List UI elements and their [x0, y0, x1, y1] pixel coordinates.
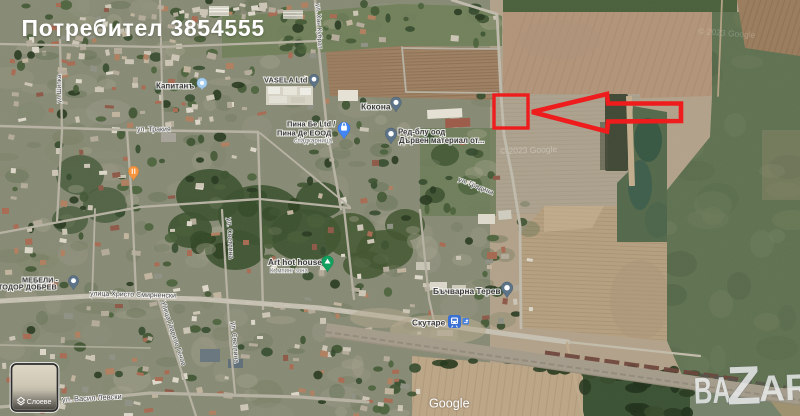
svg-text:Пина Де ЕООД: Пина Де ЕООД	[277, 128, 332, 137]
svg-text:ул.Шипка: ул.Шипка	[56, 74, 63, 103]
svg-text:AR: AR	[758, 367, 800, 410]
svg-text:Google: Google	[429, 397, 470, 411]
svg-text:Капитанъ: Капитанъ	[156, 82, 194, 91]
svg-text:сладкарница: сладкарница	[294, 138, 332, 145]
svg-text:Бъчварна Терев: Бъчварна Терев	[433, 286, 501, 296]
svg-text:ТОДОР ДОБРЕВ: ТОДОР ДОБРЕВ	[0, 283, 57, 292]
svg-text:ул. Тракия: ул. Тракия	[137, 127, 171, 134]
svg-text:Art hot house: Art hot house	[268, 257, 322, 267]
svg-text:Скутаре: Скутаре	[412, 318, 446, 328]
svg-text:VASELA Ltd: VASELA Ltd	[264, 76, 308, 85]
svg-text:Кокона: Кокона	[361, 102, 391, 112]
svg-text:Къмпинг зона: Къмпинг зона	[270, 268, 308, 274]
svg-text:Потребител 3854555: Потребител 3854555	[22, 15, 265, 41]
svg-text:Z: Z	[726, 355, 762, 416]
svg-text:© 2023 Google: © 2023 Google	[500, 144, 558, 156]
svg-text:Слоеве: Слоеве	[27, 399, 52, 406]
svg-text:Дървен материал от...: Дървен материал от...	[399, 136, 484, 145]
svg-text:Пина Бе Ltd /: Пина Бе Ltd /	[287, 120, 336, 129]
